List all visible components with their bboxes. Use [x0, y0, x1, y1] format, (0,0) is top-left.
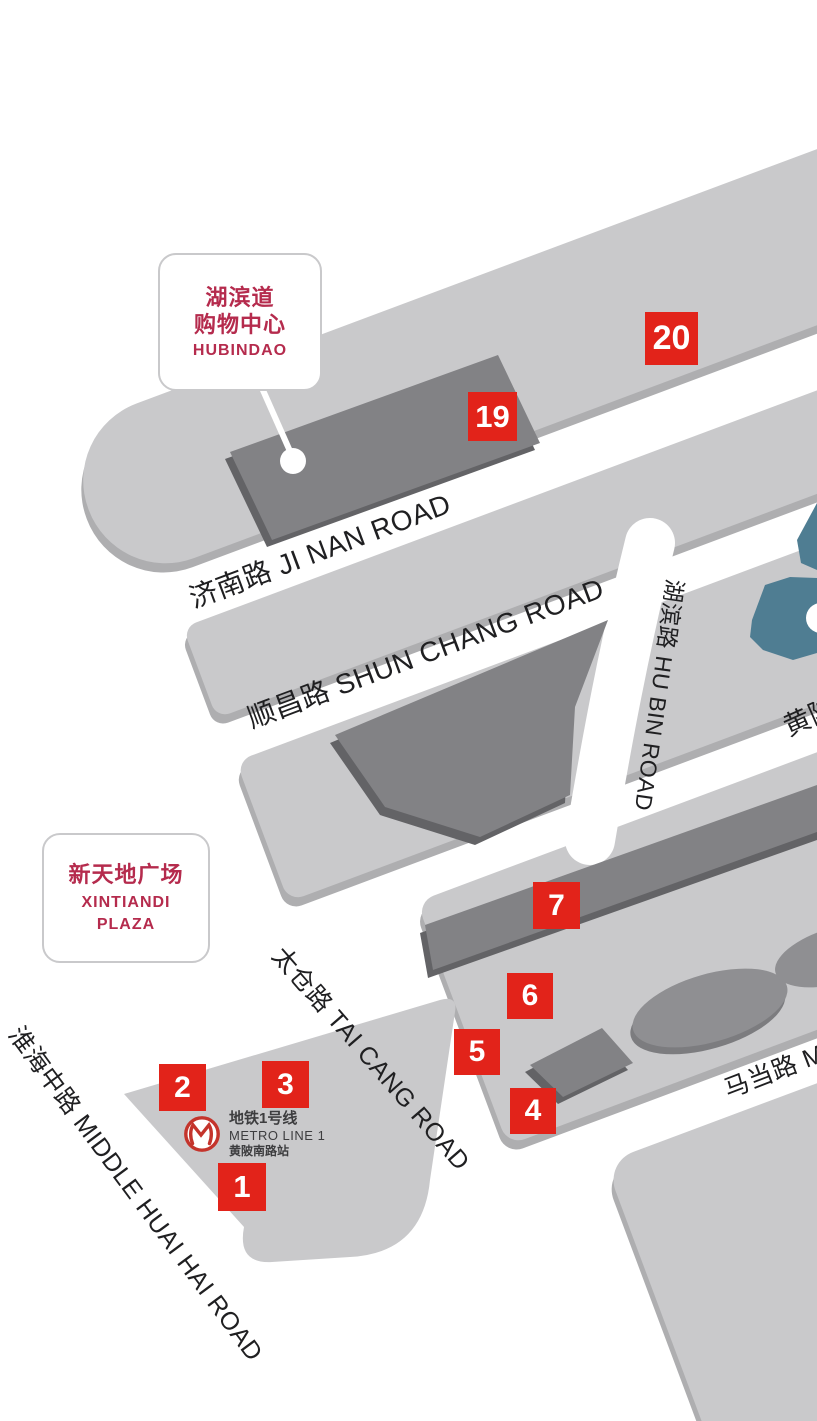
marker-badge-20[interactable]: 20: [645, 312, 698, 365]
metro-station-info: 地铁1号线 METRO LINE 1 黄陂南路站: [180, 1110, 325, 1158]
hubindao-zh-line1: 湖滨道: [160, 284, 320, 312]
xintiandi-en-line1: XINTIANDI: [44, 893, 208, 913]
xintiandi-leader-line: [200, 962, 223, 1053]
xintiandi-zh: 新天地广场: [44, 861, 208, 889]
marker-badge-3[interactable]: 3: [262, 1061, 309, 1108]
marker-badge-1[interactable]: 1: [218, 1163, 266, 1211]
marker-badge-6[interactable]: 6: [507, 973, 553, 1019]
xintiandi-label-box: 新天地广场 XINTIANDI PLAZA: [42, 833, 210, 963]
xintiandi-en-line2: PLAZA: [44, 915, 208, 935]
hubindao-label-box: 湖滨道 购物中心 HUBINDAO: [158, 253, 322, 391]
metro-station-zh: 黄陂南路站: [229, 1144, 325, 1158]
metro-line-en: METRO LINE 1: [229, 1128, 325, 1144]
hubindao-zh-line2: 购物中心: [160, 311, 320, 339]
marker-badge-7[interactable]: 7: [533, 882, 580, 929]
marker-badge-19[interactable]: 19: [468, 392, 517, 441]
hubindao-en: HUBINDAO: [160, 341, 320, 361]
marker-badge-4[interactable]: 4: [510, 1088, 556, 1134]
shanghai-metro-logo-icon: [180, 1112, 224, 1156]
marker-badge-2[interactable]: 2: [159, 1064, 206, 1111]
hubindao-location-dot: [280, 448, 306, 474]
marker-badge-5[interactable]: 5: [454, 1029, 500, 1075]
map-canvas: [0, 0, 817, 1421]
xintiandi-area-map: 济南路 JI NAN ROAD 顺昌路 SHUN CHANG ROAD 湖滨路 …: [0, 0, 817, 1421]
metro-line-zh: 地铁1号线: [229, 1110, 325, 1128]
